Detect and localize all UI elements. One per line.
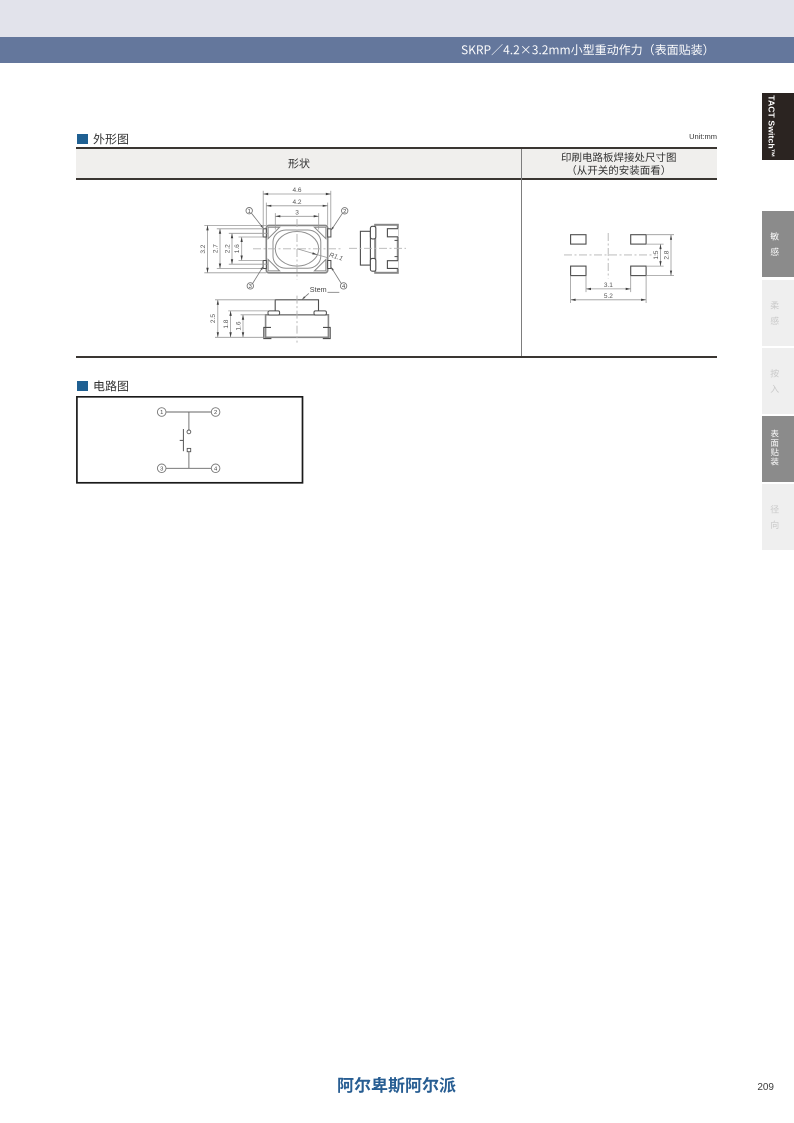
svg-text:TACT Switch™: TACT Switch™ [766,96,776,158]
svg-text:3.1: 3.1 [604,282,613,289]
svg-text:4.6: 4.6 [292,187,301,194]
svg-text:2: 2 [343,209,346,215]
svg-text:3.2: 3.2 [200,244,207,253]
svg-text:1: 1 [160,410,163,416]
svg-text:1.6: 1.6 [234,244,241,253]
svg-text:1.8: 1.8 [223,319,230,328]
svg-text:1: 1 [248,209,251,215]
svg-text:2.5: 2.5 [210,314,217,323]
svg-text:3: 3 [249,284,252,290]
svg-text:2.2: 2.2 [224,244,231,253]
svg-text:2.7: 2.7 [212,244,219,253]
svg-text:5.2: 5.2 [604,293,613,300]
svg-text:2: 2 [214,410,217,416]
svg-text:4.2: 4.2 [292,199,301,206]
svg-text:1.5: 1.5 [653,250,660,259]
svg-text:Stem: Stem [310,285,327,294]
svg-text:2.8: 2.8 [663,250,670,259]
svg-text:3: 3 [295,209,299,216]
svg-text:3: 3 [160,466,163,472]
svg-text:1.6: 1.6 [235,321,242,330]
